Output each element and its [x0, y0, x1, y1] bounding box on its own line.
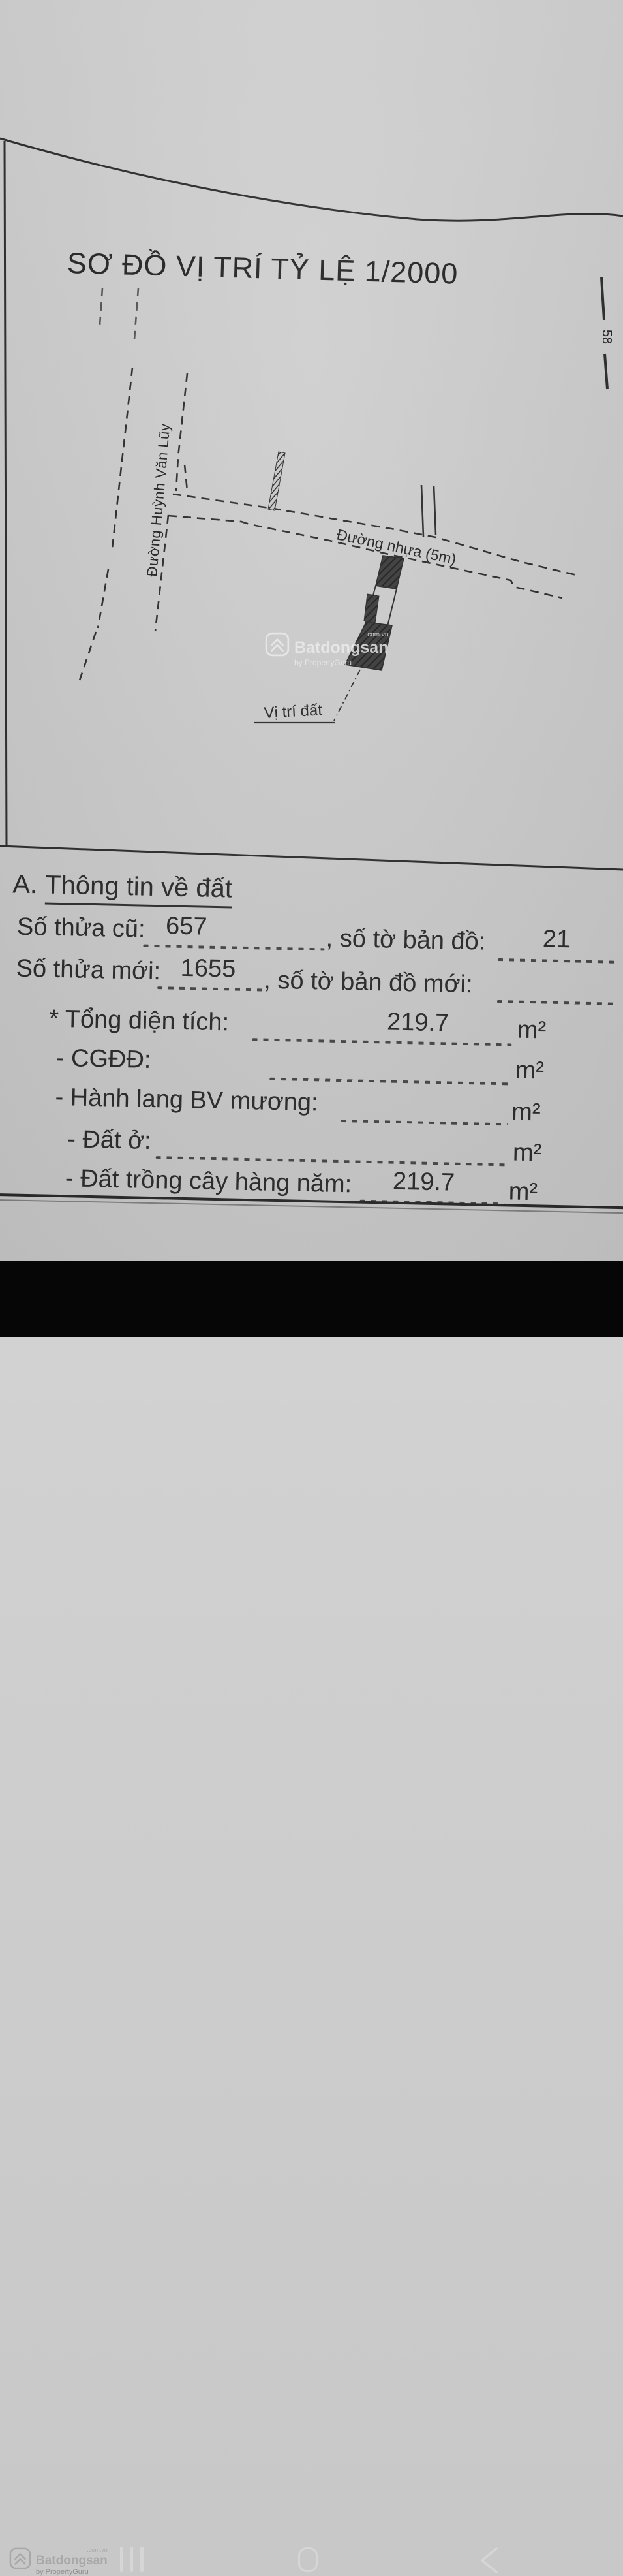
parcel-upper-block	[376, 556, 404, 589]
watermark-domain: .com.vn	[36, 2547, 108, 2553]
road-right-edge	[176, 373, 187, 491]
field-old-parcel-value: 657	[166, 912, 207, 941]
field-annual-crop-land-unit: m²	[508, 1178, 538, 1206]
field-old-parcel-label: Số thửa cũ:	[17, 913, 145, 944]
dotted-leader	[497, 1000, 616, 1005]
map-edge-tick: 58	[600, 277, 614, 389]
field-total-area-label: * Tổng diện tích:	[49, 1005, 230, 1037]
field-residential-land-unit: m²	[513, 1139, 542, 1168]
dotted-leader	[269, 1078, 509, 1086]
hatched-tick	[268, 452, 285, 510]
parcel-lower-block	[345, 622, 392, 670]
road-huynh-van-luy: Đường Huỳnh Văn Lũy	[80, 288, 187, 680]
recents-icon	[120, 2547, 123, 2572]
field-total-area-unit: m²	[517, 1016, 546, 1045]
document-left-border	[5, 141, 7, 845]
batdongsan-logo-icon	[9, 2547, 31, 2573]
section-heading: A.Thông tin về đất	[12, 870, 233, 903]
field-map-sheet-label: , số tờ bản đồ:	[326, 924, 485, 956]
dotted-leader	[157, 986, 267, 992]
parcel-callout: Vị trí đất	[254, 670, 360, 723]
dotted-leader	[143, 945, 324, 951]
crossing-lines	[421, 485, 436, 537]
dotted-leader	[252, 1038, 511, 1046]
street-vertical-label: Đường Huỳnh Văn Lũy	[144, 423, 173, 578]
field-residential-land-label: - Đất ở:	[67, 1125, 151, 1155]
back-button[interactable]	[478, 2547, 499, 2574]
site-plan-map: SƠ ĐỒ VỊ TRÍ TỶ LỆ 1/2000 58 Đường Huỳnh…	[0, 0, 623, 875]
watermark-byline: by PropertyGuru	[36, 2569, 108, 2576]
field-new-map-sheet-label: , số tờ bản đồ mới:	[264, 967, 473, 999]
section-heading-text: Thông tin về đất	[45, 870, 233, 908]
land-parcel	[345, 556, 404, 670]
field-annual-crop-land-label: - Đất trồng cây hàng năm:	[65, 1165, 352, 1199]
field-new-parcel-value: 1655	[180, 954, 236, 984]
field-annual-crop-land-value: 219.7	[393, 1168, 455, 1197]
android-navigation-bar: .com.vn Batdongsan by PropertyGuru	[0, 1261, 623, 1337]
dotted-leader	[156, 1156, 508, 1166]
section-heading-prefix: A.	[12, 870, 38, 899]
road-left-edge	[80, 368, 132, 680]
road-nhua-5m: Đường nhựa (5m)	[168, 494, 579, 598]
land-info-section: A.Thông tin về đất Số thửa cũ: 657 , số …	[0, 866, 623, 1231]
map-bottom-border	[0, 846, 623, 870]
dotted-leader	[341, 1120, 508, 1125]
field-canal-corridor-unit: m²	[511, 1099, 541, 1127]
back-icon	[482, 2549, 496, 2572]
recents-button[interactable]	[120, 2547, 146, 2573]
home-button[interactable]	[298, 2547, 318, 2572]
field-new-parcel-label: Số thửa mới:	[16, 955, 160, 986]
field-cgdd-label: - CGĐĐ:	[55, 1045, 151, 1075]
edge-mark-label: 58	[600, 330, 614, 344]
watermark-navbar: .com.vn Batdongsan by PropertyGuru	[9, 2547, 108, 2576]
parcel-label: Vị trí đất	[264, 701, 323, 722]
dotted-leader	[498, 958, 616, 964]
field-map-sheet-value: 21	[542, 925, 570, 954]
map-title: SƠ ĐỒ VỊ TRÍ TỶ LỆ 1/2000	[67, 246, 459, 291]
field-total-area-value: 219.7	[387, 1008, 449, 1037]
field-cgdd-unit: m²	[515, 1057, 544, 1086]
document-top-border	[0, 138, 623, 221]
watermark-brand: Batdongsan	[36, 2554, 108, 2567]
field-canal-corridor-label: - Hành lang BV mương:	[55, 1084, 318, 1117]
